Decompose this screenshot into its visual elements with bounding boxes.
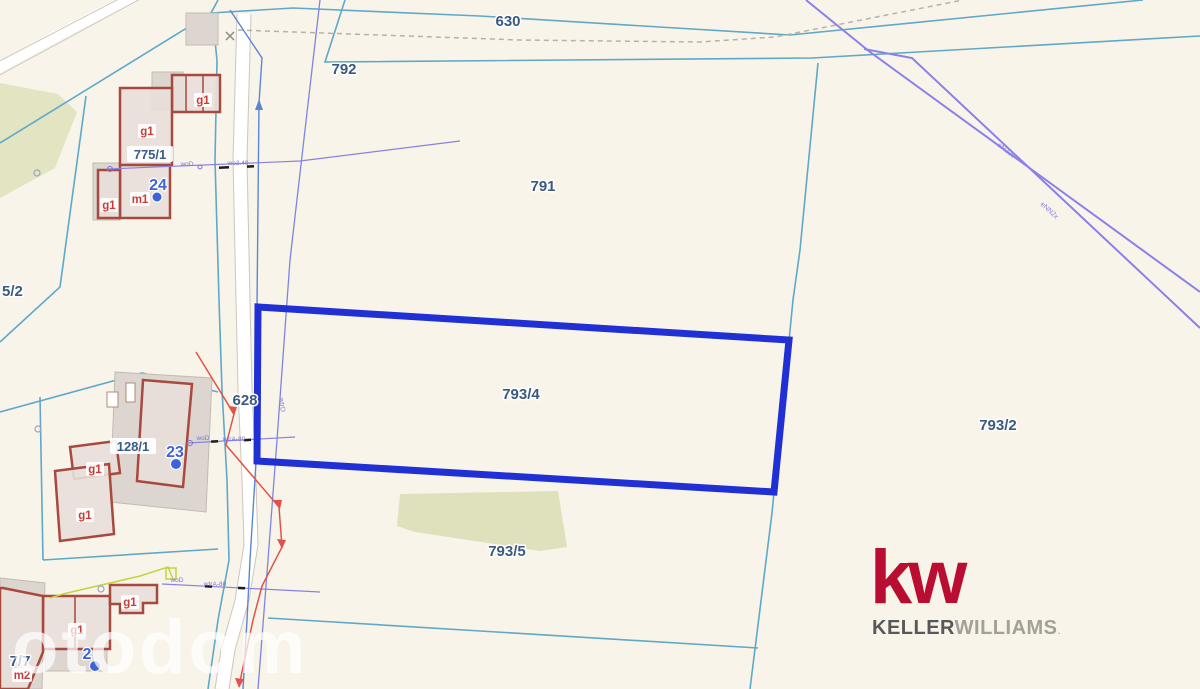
small-structure — [126, 383, 135, 402]
utility-label: wo3.40 — [227, 160, 249, 167]
keller-williams-logo: kw KELLERWILLIAMS. — [872, 540, 1092, 638]
otodom-watermark: otodom — [12, 604, 309, 689]
kw-logo-dot: . — [1058, 623, 1062, 637]
chip-text: g1 — [88, 464, 102, 476]
building-gray — [186, 13, 218, 45]
building-chip-g1: g1 — [76, 508, 94, 522]
kw-logo-williams: WILLIAMS — [955, 617, 1058, 639]
parcel-label-628: 628 — [232, 392, 257, 409]
kw-logo-name: KELLERWILLIAMS. — [872, 618, 1092, 638]
parcel-label-775-2: 5/2 — [2, 283, 23, 300]
parcel-label-792: 792 — [331, 61, 356, 78]
building-chip-g1: g1 — [138, 124, 156, 138]
marker-dot-icon — [152, 192, 162, 202]
chip-text: g1 — [196, 95, 210, 107]
chip-text: g1 — [102, 200, 116, 212]
marker-label: 24 — [149, 177, 167, 194]
marker-dot-icon — [171, 459, 182, 470]
chip-text: 128/1 — [117, 439, 150, 454]
utility-label: wtrA-80 — [203, 581, 227, 588]
building — [55, 464, 114, 541]
utility-label: woD — [179, 161, 193, 168]
parcel-chip-128-1: 128/1 — [110, 438, 156, 454]
building-chip-g1: g1 — [100, 198, 118, 212]
building-chip-g1: g1 — [86, 462, 104, 476]
parcel-label-630: 630 — [495, 13, 520, 30]
parcel-chip-775-1: 775/1 — [127, 146, 173, 162]
chip-text: 775/1 — [134, 147, 167, 162]
parcel-label-793-5: 793/5 — [488, 543, 526, 560]
cadastral-map: 630 792 791 5/2 628 793/4 793/2 793/5 7/… — [0, 0, 1200, 689]
utility-label: woD — [195, 435, 209, 442]
chip-text: g1 — [140, 126, 154, 138]
utility-label: woD — [169, 577, 183, 584]
utility-label: wtrA-80 — [222, 436, 246, 443]
chip-text: m1 — [132, 194, 149, 206]
parcel-label-793-2: 793/2 — [979, 417, 1017, 434]
parcel-label-793-4: 793/4 — [502, 386, 540, 403]
building-chip-m1: m1 — [130, 192, 150, 206]
kw-logo-keller: KELLER — [872, 617, 955, 639]
building — [137, 380, 192, 487]
small-structure — [107, 392, 118, 407]
building-chip-g1: g1 — [194, 93, 212, 107]
chip-text: g1 — [78, 510, 92, 522]
tick — [219, 167, 229, 168]
parcel-label-791: 791 — [530, 178, 555, 195]
kw-logo-mark: kw — [870, 540, 1092, 616]
